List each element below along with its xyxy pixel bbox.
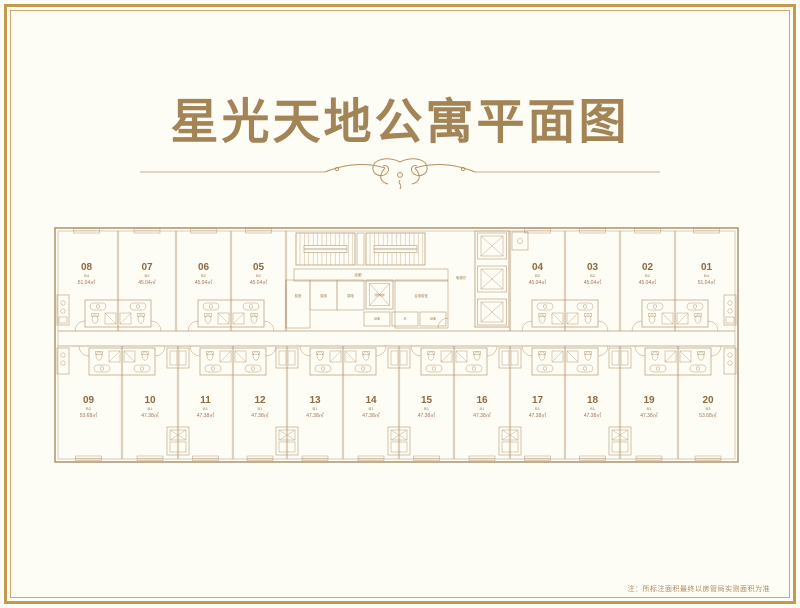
floor-plan: 08B451.04㎡07B245.04㎡06B245.04㎡05B245.04㎡… xyxy=(48,213,753,468)
svg-text:B1: B1 xyxy=(313,406,319,411)
svg-text:B2: B2 xyxy=(201,273,207,278)
svg-text:15: 15 xyxy=(421,395,433,406)
bathroom-cluster xyxy=(635,346,721,375)
elevator-bank xyxy=(475,231,509,327)
svg-text:弱电: 弱电 xyxy=(347,293,354,298)
floor-plan-container: 08B451.04㎡07B245.04㎡06B245.04㎡05B245.04㎡… xyxy=(48,213,753,473)
service-shaft xyxy=(276,348,298,455)
unit-14: 14B147.38㎡ xyxy=(362,395,380,419)
service-shaft xyxy=(167,348,189,455)
svg-text:47.38㎡: 47.38㎡ xyxy=(418,412,436,419)
bathroom-cluster xyxy=(190,346,276,375)
unit-04: 04B245.04㎡ xyxy=(529,262,547,286)
page-title: 星光天地公寓平面图 xyxy=(0,82,800,152)
svg-text:13: 13 xyxy=(309,395,321,406)
svg-text:18: 18 xyxy=(587,395,599,406)
svg-text:走廊: 走廊 xyxy=(354,272,362,277)
svg-text:45.04㎡: 45.04㎡ xyxy=(639,279,657,286)
svg-text:电梯厅: 电梯厅 xyxy=(456,275,467,280)
bathroom-cluster xyxy=(188,300,274,331)
unit-11: 11B147.38㎡ xyxy=(197,395,215,419)
svg-text:07: 07 xyxy=(141,262,153,273)
svg-text:08: 08 xyxy=(81,262,93,273)
svg-text:47.38㎡: 47.38㎡ xyxy=(306,412,324,419)
svg-text:B1: B1 xyxy=(148,406,154,411)
svg-text:16: 16 xyxy=(476,395,488,406)
svg-text:10: 10 xyxy=(144,395,156,406)
svg-text:设备: 设备 xyxy=(430,316,436,321)
svg-text:47.38㎡: 47.38㎡ xyxy=(584,412,602,419)
svg-text:47.38㎡: 47.38㎡ xyxy=(141,412,159,419)
unit-01: 01B451.04㎡ xyxy=(698,262,716,286)
svg-text:51.04㎡: 51.04㎡ xyxy=(698,279,716,286)
svg-text:B2: B2 xyxy=(535,273,541,278)
poster-page: 星光天地公寓平面图 08B451.04㎡07B245.04㎡06B245.04㎡… xyxy=(0,0,800,608)
svg-text:45.04㎡: 45.04㎡ xyxy=(529,279,547,286)
service-shaft xyxy=(499,348,521,455)
svg-text:B2: B2 xyxy=(145,273,151,278)
svg-text:47.38㎡: 47.38㎡ xyxy=(640,412,658,419)
unit-16: 16B147.38㎡ xyxy=(473,395,491,419)
svg-text:水: 水 xyxy=(403,316,406,321)
svg-text:45.04㎡: 45.04㎡ xyxy=(250,279,268,286)
svg-text:47.38㎡: 47.38㎡ xyxy=(529,412,547,419)
unit-13: 13B147.38㎡ xyxy=(306,395,324,419)
unit-03: 03B245.04㎡ xyxy=(584,262,602,286)
unit-17: 17B147.38㎡ xyxy=(529,395,547,419)
unit-08: 08B451.04㎡ xyxy=(78,262,96,286)
svg-text:B1: B1 xyxy=(424,406,430,411)
svg-text:B1: B1 xyxy=(590,406,596,411)
svg-text:45.04㎡: 45.04㎡ xyxy=(138,279,156,286)
svg-text:B1: B1 xyxy=(647,406,653,411)
bathroom-cluster xyxy=(632,300,718,331)
unit-12: 12B147.38㎡ xyxy=(251,395,269,419)
svg-text:03: 03 xyxy=(587,262,599,273)
svg-text:B4: B4 xyxy=(84,273,90,278)
staircase xyxy=(366,233,425,265)
svg-text:02: 02 xyxy=(642,262,654,273)
svg-text:设备: 设备 xyxy=(374,316,380,321)
svg-text:45.04㎡: 45.04㎡ xyxy=(584,279,602,286)
fire-elevator: 消防电梯 xyxy=(366,280,393,309)
svg-text:B1: B1 xyxy=(258,406,264,411)
unit-15: 15B147.38㎡ xyxy=(418,395,436,419)
bathroom-cluster xyxy=(79,346,165,375)
unit-05: 05B245.04㎡ xyxy=(250,262,268,286)
service-shaft xyxy=(609,348,631,455)
svg-text:14: 14 xyxy=(365,395,377,406)
svg-text:19: 19 xyxy=(643,395,655,406)
svg-text:合用前室: 合用前室 xyxy=(414,293,428,298)
svg-text:B3: B3 xyxy=(706,406,712,411)
bathroom-cluster xyxy=(522,346,608,375)
svg-text:11: 11 xyxy=(200,395,211,406)
svg-text:51.04㎡: 51.04㎡ xyxy=(78,279,96,286)
svg-text:47.38㎡: 47.38㎡ xyxy=(362,412,380,419)
svg-text:09: 09 xyxy=(83,395,95,406)
unit-19: 19B147.38㎡ xyxy=(640,395,658,419)
svg-text:B3: B3 xyxy=(86,406,92,411)
svg-text:前室: 前室 xyxy=(295,293,302,298)
bathroom-cluster xyxy=(411,346,497,375)
service-shaft xyxy=(388,348,410,455)
unit-18: 18B147.38㎡ xyxy=(584,395,602,419)
svg-text:17: 17 xyxy=(532,395,544,406)
unit-09: 09B353.68㎡ xyxy=(80,395,98,419)
title-ornament-flourish xyxy=(140,156,660,196)
svg-text:06: 06 xyxy=(198,262,210,273)
bathroom-cluster xyxy=(300,346,386,375)
svg-text:53.68㎡: 53.68㎡ xyxy=(699,412,717,419)
svg-text:12: 12 xyxy=(254,395,266,406)
core: 走廊前室强电弱电消防电梯合用前室设备水设备电梯厅 xyxy=(286,231,509,328)
svg-text:B1: B1 xyxy=(369,406,375,411)
bathroom-cluster xyxy=(522,300,608,331)
disclaimer-note: 注：所标注面积最终以房管局实测面积为准 xyxy=(628,584,771,594)
svg-text:B2: B2 xyxy=(590,273,596,278)
svg-text:47.38㎡: 47.38㎡ xyxy=(251,412,269,419)
svg-text:01: 01 xyxy=(701,262,713,273)
svg-text:47.38㎡: 47.38㎡ xyxy=(197,412,215,419)
svg-text:B2: B2 xyxy=(256,273,262,278)
unit-10: 10B147.38㎡ xyxy=(141,395,159,419)
svg-text:45.04㎡: 45.04㎡ xyxy=(195,279,213,286)
svg-text:20: 20 xyxy=(702,395,714,406)
unit-06: 06B245.04㎡ xyxy=(195,262,213,286)
staircase xyxy=(296,233,355,265)
unit-07: 07B245.04㎡ xyxy=(138,262,156,286)
unit-02: 02B245.04㎡ xyxy=(639,262,657,286)
svg-text:B1: B1 xyxy=(203,406,209,411)
svg-text:B2: B2 xyxy=(645,273,651,278)
svg-text:47.38㎡: 47.38㎡ xyxy=(473,412,491,419)
bathroom-cluster xyxy=(75,300,161,331)
svg-text:53.68㎡: 53.68㎡ xyxy=(80,412,98,419)
svg-text:05: 05 xyxy=(253,262,265,273)
svg-text:B1: B1 xyxy=(535,406,541,411)
unit-20: 20B353.68㎡ xyxy=(699,395,717,419)
svg-text:B4: B4 xyxy=(704,273,710,278)
svg-text:强电: 强电 xyxy=(320,293,327,298)
svg-text:消防电梯: 消防电梯 xyxy=(374,293,385,297)
svg-text:B1: B1 xyxy=(480,406,486,411)
svg-text:04: 04 xyxy=(532,262,544,273)
